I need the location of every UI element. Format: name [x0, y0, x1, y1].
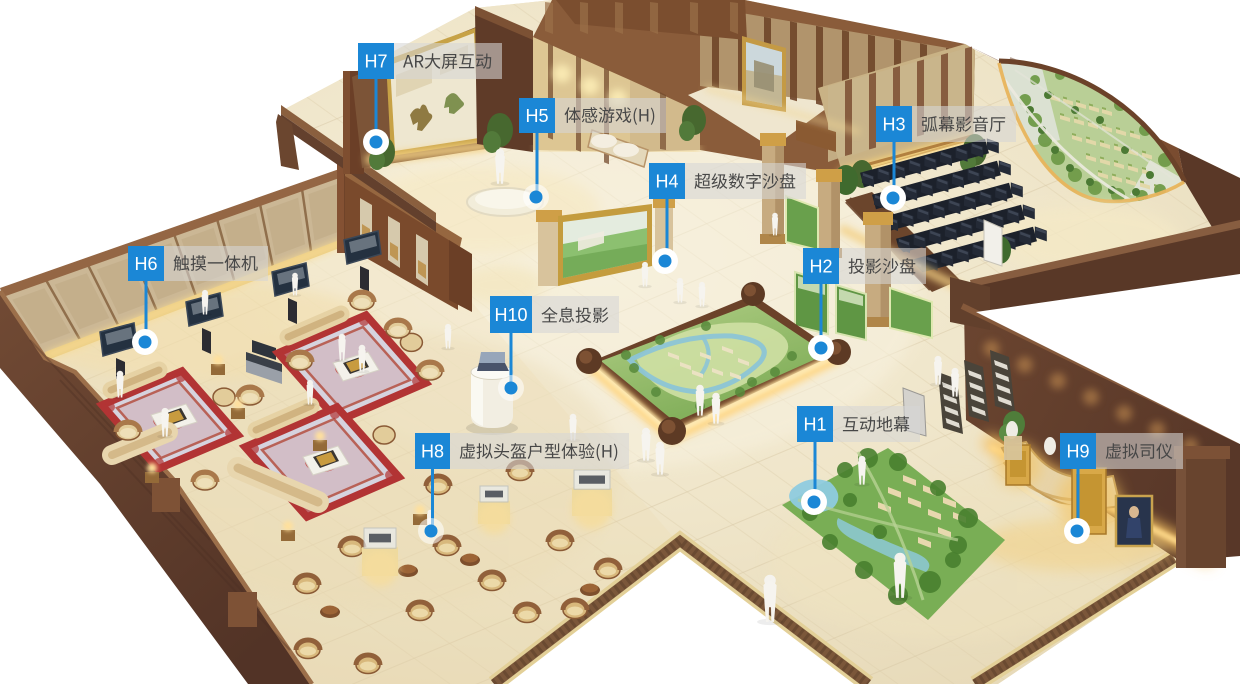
svg-text:H5: H5	[525, 106, 548, 126]
svg-text:H10: H10	[494, 305, 527, 325]
svg-text:H9: H9	[1066, 442, 1089, 462]
svg-text:H8: H8	[421, 442, 444, 462]
svg-text:H6: H6	[134, 254, 157, 274]
svg-text:H2: H2	[809, 257, 832, 277]
svg-text:H1: H1	[803, 415, 826, 435]
svg-text:H7: H7	[364, 52, 387, 72]
svg-text:H3: H3	[882, 115, 905, 135]
svg-text:H4: H4	[655, 172, 678, 192]
